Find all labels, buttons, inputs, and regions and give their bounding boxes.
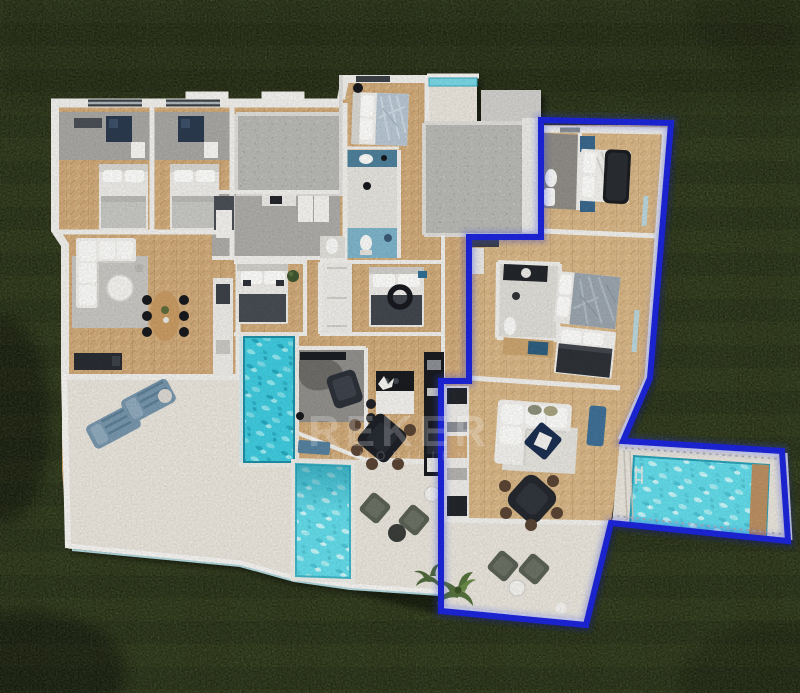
svg-text:IMMOBILIEN: IMMOBILIEN	[332, 449, 473, 463]
